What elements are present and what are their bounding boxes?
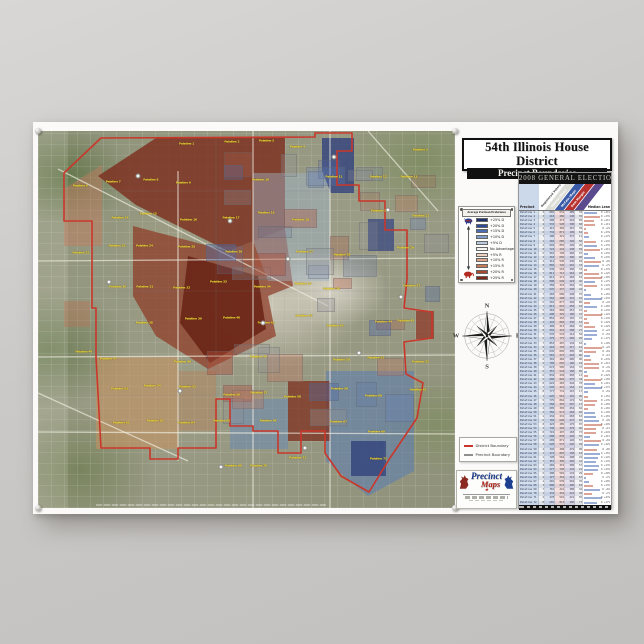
- precinct-label: Palatine 5: [413, 149, 428, 152]
- precinct-label: Palatine 14: [112, 217, 129, 220]
- election-table-title: 2008 General Election: [519, 173, 611, 184]
- precinct-label: Palatine 64: [178, 421, 195, 424]
- precinct-label: Palatine 19: [292, 218, 309, 221]
- legend-swatch: [476, 247, 488, 251]
- election-table-row: Palatine 72866581340677D +17%: [519, 501, 611, 505]
- legend-label: +20% R: [490, 270, 504, 274]
- precinct-label: Palatine 8: [143, 178, 158, 181]
- logo-rule: [463, 494, 510, 495]
- logo-word-maps: Maps: [479, 480, 502, 488]
- precinct-label: Palatine 11: [325, 175, 342, 178]
- route-shield-icon: [219, 464, 224, 469]
- legend-swatch: [476, 241, 488, 245]
- legend-label: +5% R: [490, 253, 502, 257]
- precinct-label: Palatine 54: [144, 385, 161, 388]
- legend-entry: +25% R: [476, 275, 512, 281]
- precinct-label: Palatine 37: [403, 284, 420, 287]
- heraldic-lion-left-icon: [457, 474, 470, 490]
- precinct-boundary-lines: [92, 137, 434, 476]
- precinct-label: Palatine 26: [225, 251, 242, 254]
- route-shield-icon: [177, 389, 182, 394]
- precinct-label: Palatine 72: [370, 458, 387, 461]
- election-table-totals-row: [519, 505, 611, 510]
- legend-arrow-icon: [467, 226, 470, 271]
- precinct-label: Palatine 50: [333, 358, 350, 361]
- legend-title: Average Partisan Preference: [462, 209, 511, 217]
- precinct-label: Palatine 25: [178, 245, 195, 248]
- precinct-label: Palatine 2: [224, 140, 239, 143]
- legend-label: +20% D: [490, 224, 504, 228]
- precinct-label: Palatine 44: [375, 321, 392, 324]
- precinct-label: Palatine 9: [176, 182, 191, 185]
- precinct-label: Palatine 7: [106, 181, 121, 184]
- precinct-label: Palatine 1: [179, 142, 194, 145]
- legend-entries: +25% D+20% D+15% D+10% D+5% DNo Advantag…: [476, 217, 512, 280]
- precinct-label: Palatine 53: [111, 387, 128, 390]
- legend-swatch: [476, 235, 488, 239]
- boundary-key-entry: District Boundary: [464, 441, 514, 450]
- precinct-label: Palatine 57: [250, 391, 267, 394]
- precinct-label: Palatine 69: [225, 465, 242, 468]
- route-shield-icon: [332, 155, 337, 160]
- precinct-label: Palatine 48: [174, 360, 191, 363]
- precinct-label: Palatine 38: [136, 321, 153, 324]
- precinct-label: Palatine 13: [400, 175, 417, 178]
- election-results-table: 2008 General Election Registered VotersO…: [518, 172, 612, 509]
- precinct-label: Palatine 67: [330, 420, 347, 423]
- precinct-label: Palatine 27: [296, 250, 313, 253]
- precinct-label: Palatine 63: [147, 420, 164, 423]
- legend-label: No Advantage: [490, 247, 514, 251]
- poster-title: 54th Illinois House District: [464, 140, 610, 168]
- precinct-label: Palatine 66: [260, 420, 277, 423]
- title-block: 54th Illinois House District Precinct Bo…: [462, 138, 612, 171]
- route-shield-icon: [398, 294, 403, 299]
- precinct-label: Palatine 21: [412, 214, 429, 217]
- legend-label: +10% R: [490, 258, 504, 262]
- precinct-label: Palatine 47: [100, 358, 117, 361]
- boundary-key: District BoundaryPrecinct Boundary: [459, 437, 517, 462]
- precinct-label: Palatine 70: [250, 464, 267, 467]
- precinct-label: Palatine 65: [213, 420, 230, 423]
- precinct-label: Palatine 46: [75, 350, 92, 353]
- precinct-label: Palatine 51: [367, 357, 384, 360]
- precinct-label: Palatine 32: [173, 286, 190, 289]
- precinct-label: Palatine 4: [290, 146, 305, 149]
- precinct-label: Palatine 52: [412, 361, 429, 364]
- legend-swatch: [476, 258, 488, 262]
- republican-elephant-icon: [464, 272, 473, 278]
- legend-label: +25% R: [490, 276, 504, 280]
- logo-wordmark: Precinct Maps ★: [471, 472, 502, 492]
- compass-w-label: W: [453, 333, 460, 340]
- legend-swatch: [476, 264, 488, 268]
- precinct-label: Palatine 62: [113, 422, 130, 425]
- precinct-label: Palatine 56: [223, 393, 240, 396]
- precinct-label: Palatine 30: [109, 285, 126, 288]
- precinct-label: Palatine 12: [370, 175, 387, 178]
- compass-s-label: S: [485, 364, 489, 371]
- corner-pin-icon: [35, 505, 41, 511]
- compass-n-label: N: [485, 302, 490, 309]
- legend-swatch: [476, 229, 488, 233]
- legend-label: +15% D: [490, 229, 504, 233]
- legend-label: +5% D: [490, 241, 502, 245]
- route-shield-icon: [136, 174, 141, 179]
- district-boundary-layer: [38, 131, 455, 508]
- boundary-key-entry: Precinct Boundary: [464, 450, 514, 459]
- precinct-label: Palatine 42: [295, 315, 312, 318]
- legend-swatch: [476, 218, 488, 222]
- route-shield-icon: [106, 279, 111, 284]
- corner-pin-icon: [35, 128, 41, 134]
- precinct-label: Palatine 68: [368, 431, 385, 434]
- precinct-label: Palatine 3: [259, 140, 274, 143]
- democrat-donkey-icon: [464, 218, 473, 224]
- precinct-label: Palatine 24: [136, 245, 153, 248]
- legend-swatch: [476, 270, 488, 274]
- compass-rose: N S E W: [454, 303, 520, 369]
- route-shield-icon: [302, 445, 307, 450]
- lean-column-header: Median Lean: [588, 205, 610, 209]
- boundary-key-label: District Boundary: [476, 443, 509, 448]
- publisher-logo: Precinct Maps ★: [456, 470, 517, 509]
- precinct-label: Palatine 28: [333, 254, 350, 257]
- partisan-legend: Average Partisan Preference: [458, 206, 515, 283]
- heraldic-lion-right-icon: [503, 474, 516, 490]
- map-credit-line: [96, 504, 325, 507]
- precinct-label: Palatine 39: [185, 318, 202, 321]
- precinct-label: Palatine 31: [136, 285, 153, 288]
- route-shield-icon: [386, 208, 391, 213]
- precinct-label: Palatine 71: [289, 456, 306, 459]
- precinct-label: Palatine 45: [397, 320, 414, 323]
- precinct-label: Palatine 58: [284, 395, 301, 398]
- precinct-label: Palatine 6: [73, 184, 88, 187]
- precinct-label: Palatine 18: [258, 211, 275, 214]
- precinct-label: Palatine 35: [295, 282, 312, 285]
- precinct-label: Palatine 33: [210, 281, 227, 284]
- precinct-label: Palatine 49: [250, 356, 267, 359]
- precinct-label: Palatine 10: [252, 178, 269, 181]
- route-shield-icon: [357, 351, 362, 356]
- legend-swatch: [476, 224, 488, 228]
- logo-tagline-2: [469, 500, 504, 502]
- precinct-label: Palatine 22: [72, 251, 89, 254]
- logo-tagline: [465, 496, 508, 499]
- precinct-label: Palatine 61: [410, 388, 427, 391]
- election-table-rows: Palatine 1386563148933D +21%Palatine 232…: [519, 211, 611, 505]
- poster: Palatine 1Palatine 2Palatine 3Palatine 4…: [33, 122, 618, 514]
- district-map: Palatine 1Palatine 2Palatine 3Palatine 4…: [38, 131, 455, 508]
- legend-label: +15% R: [490, 264, 504, 268]
- precinct-label: Palatine 34: [254, 286, 271, 289]
- precinct-label: Palatine 29: [397, 246, 414, 249]
- legend-axis: [462, 217, 475, 279]
- precinct-label: Palatine 23: [109, 245, 126, 248]
- legend-label: +10% D: [490, 235, 504, 239]
- legend-swatch: [476, 253, 488, 257]
- legend-swatch: [476, 276, 488, 280]
- route-shield-icon: [286, 257, 291, 262]
- boundary-key-swatch: [464, 454, 473, 456]
- precinct-label: Palatine 43: [327, 324, 344, 327]
- route-shield-icon: [227, 219, 232, 224]
- precinct-label: Palatine 60: [365, 395, 382, 398]
- precinct-label: Palatine 16: [180, 219, 197, 222]
- precinct-label: Palatine 36: [323, 287, 340, 290]
- precinct-label: Palatine 40: [223, 316, 240, 319]
- precinct-label: Palatine 59: [331, 387, 348, 390]
- boundary-key-label: Precinct Boundary: [476, 452, 511, 457]
- route-shield-icon: [261, 321, 266, 326]
- legend-label: +25% D: [490, 218, 504, 222]
- precinct-column-header: Precinct: [520, 205, 534, 209]
- district-boundary-line: [64, 133, 432, 492]
- precinct-label: Palatine 55: [179, 385, 196, 388]
- boundary-key-swatch: [464, 445, 473, 447]
- precinct-label: Palatine 15: [140, 213, 157, 216]
- corner-pin-icon: [452, 128, 458, 134]
- election-table-header: Registered VotersObama (Dem)McCain (Rep)…: [519, 184, 611, 211]
